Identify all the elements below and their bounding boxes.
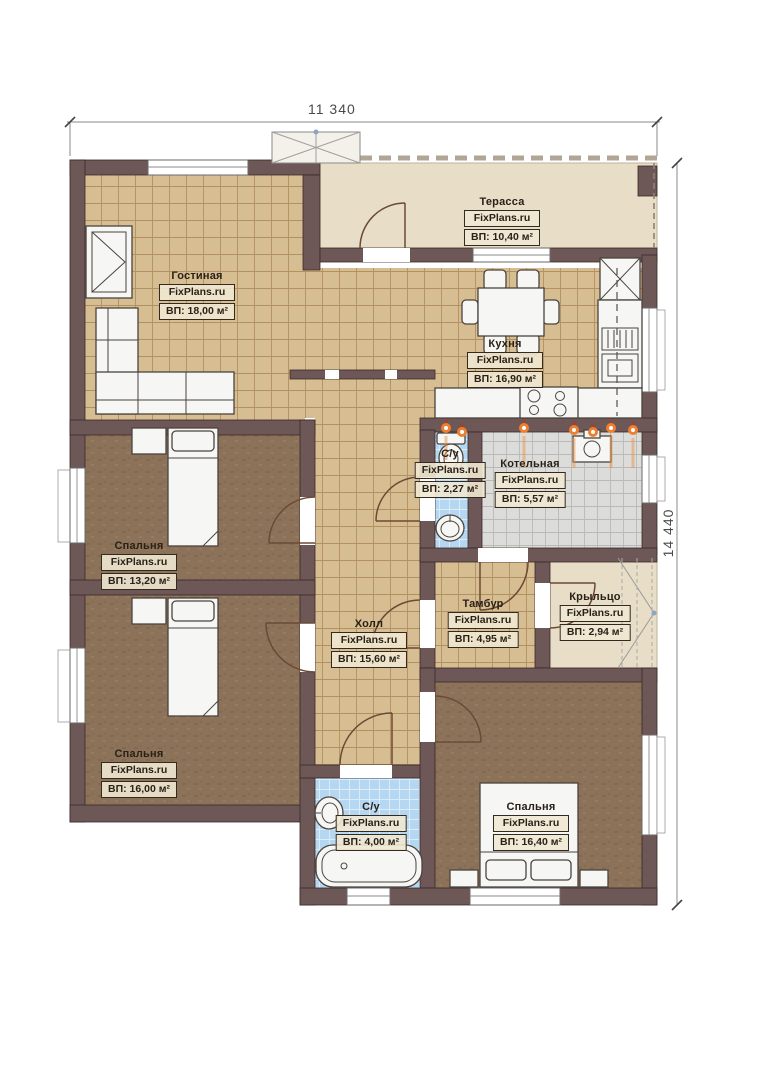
- window-bedroom3-right: [642, 735, 665, 835]
- room-area: ВП: 16,90 м²: [467, 371, 543, 388]
- dimension-line-top: [65, 117, 662, 156]
- room-label-kitchen: Кухня FixPlans.ru ВП: 16,90 м²: [467, 338, 543, 388]
- room-brand: FixPlans.ru: [331, 632, 407, 649]
- window-boiler-right: [642, 455, 665, 503]
- room-name: Спальня: [101, 748, 177, 760]
- dimension-width-label: 11 340: [308, 101, 356, 117]
- room-name: Тамбур: [448, 598, 519, 610]
- room-brand: FixPlans.ru: [336, 815, 407, 832]
- stove-icon: [520, 387, 578, 418]
- room-brand: FixPlans.ru: [560, 605, 631, 622]
- hall-floor: [315, 375, 420, 765]
- room-label-tambour: Тамбур FixPlans.ru ВП: 4,95 м²: [448, 598, 519, 648]
- room-label-wc-small: С/у FixPlans.ru ВП: 2,27 м²: [415, 448, 486, 498]
- room-name: Крыльцо: [560, 591, 631, 603]
- room-brand: FixPlans.ru: [493, 815, 569, 832]
- room-name: Терасса: [464, 196, 540, 208]
- room-label-living: Гостиная FixPlans.ru ВП: 18,00 м²: [159, 270, 235, 320]
- fireplace-icon: [86, 226, 132, 298]
- window-terrace: [473, 248, 550, 262]
- room-label-terrace: Терасса FixPlans.ru ВП: 10,40 м²: [464, 196, 540, 246]
- room-label-bedroom1: Спальня FixPlans.ru ВП: 13,20 м²: [101, 540, 177, 590]
- room-brand: FixPlans.ru: [467, 352, 543, 369]
- room-brand: FixPlans.ru: [415, 462, 486, 479]
- bathtub-icon: [316, 845, 422, 887]
- room-area: ВП: 5,57 м²: [495, 491, 566, 508]
- room-name: Котельная: [495, 458, 566, 470]
- room-area: ВП: 18,00 м²: [159, 303, 235, 320]
- room-brand: FixPlans.ru: [448, 612, 519, 629]
- nightstand: [580, 870, 608, 887]
- room-name: Холл: [331, 618, 407, 630]
- window-living-top: [148, 160, 248, 175]
- room-area: ВП: 2,94 м²: [560, 624, 631, 641]
- room-brand: FixPlans.ru: [101, 554, 177, 571]
- room-area: ВП: 10,40 м²: [464, 229, 540, 246]
- vent-shaft-icon: [600, 258, 640, 300]
- room-name: С/у: [415, 448, 486, 460]
- room-name: Спальня: [493, 801, 569, 813]
- room-name: Спальня: [101, 540, 177, 552]
- room-name: Гостиная: [159, 270, 235, 282]
- room-area: ВП: 2,27 м²: [415, 481, 486, 498]
- room-label-porch: Крыльцо FixPlans.ru ВП: 2,94 м²: [560, 591, 631, 641]
- floor-plan-canvas: Гостиная FixPlans.ru ВП: 18,00 м² Терасс…: [0, 0, 763, 1080]
- window-bedroom3-bottom: [470, 888, 560, 905]
- window-bathroom-bottom: [347, 888, 390, 905]
- room-label-bedroom2: Спальня FixPlans.ru ВП: 16,00 м²: [101, 748, 177, 798]
- room-brand: FixPlans.ru: [101, 762, 177, 779]
- kitchen-counter-right: [598, 300, 642, 388]
- room-label-bedroom3: Спальня FixPlans.ru ВП: 16,40 м²: [493, 801, 569, 851]
- room-area: ВП: 4,00 м²: [336, 834, 407, 851]
- nightstand: [450, 870, 478, 887]
- canopy-icon: [272, 130, 360, 164]
- room-label-bathroom: С/у FixPlans.ru ВП: 4,00 м²: [336, 801, 407, 851]
- window-bedroom2-left: [58, 648, 85, 723]
- window-kitchen-right: [642, 308, 665, 392]
- terrace-column: [638, 166, 657, 196]
- room-brand: FixPlans.ru: [159, 284, 235, 301]
- room-area: ВП: 16,40 м²: [493, 834, 569, 851]
- room-brand: FixPlans.ru: [464, 210, 540, 227]
- room-name: С/у: [336, 801, 407, 813]
- window-bedroom1-left: [58, 468, 85, 543]
- room-label-hall: Холл FixPlans.ru ВП: 15,60 м²: [331, 618, 407, 668]
- room-area: ВП: 4,95 м²: [448, 631, 519, 648]
- room-name: Кухня: [467, 338, 543, 350]
- room-area: ВП: 15,60 м²: [331, 651, 407, 668]
- dimension-height-label: 14 440: [660, 509, 676, 558]
- room-brand: FixPlans.ru: [495, 472, 566, 489]
- room-area: ВП: 16,00 м²: [101, 781, 177, 798]
- kitchen-counter-bottom: [435, 387, 642, 418]
- sink-small-icon: [436, 515, 464, 541]
- room-label-boiler: Котельная FixPlans.ru ВП: 5,57 м²: [495, 458, 566, 508]
- room-area: ВП: 13,20 м²: [101, 573, 177, 590]
